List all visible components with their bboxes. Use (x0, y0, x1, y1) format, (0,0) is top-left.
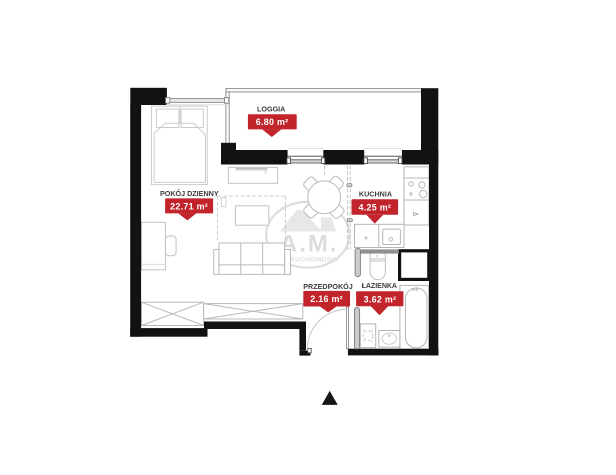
svg-text:6.80 m²: 6.80 m² (256, 117, 289, 127)
svg-text:4.25 m²: 4.25 m² (358, 202, 391, 212)
svg-text:22.71 m²: 22.71 m² (170, 201, 208, 211)
svg-text:3.62 m²: 3.62 m² (364, 294, 397, 304)
svg-text:ŁAZIENKA: ŁAZIENKA (362, 283, 397, 290)
svg-text:KUCHNIA: KUCHNIA (359, 190, 392, 199)
svg-text:POKÓJ DZIENNY: POKÓJ DZIENNY (160, 189, 219, 198)
svg-text:2.16 m²: 2.16 m² (310, 294, 343, 304)
svg-text:PRZEDPOKÓJ: PRZEDPOKÓJ (303, 282, 353, 291)
svg-text:LOGGIA: LOGGIA (257, 105, 285, 114)
